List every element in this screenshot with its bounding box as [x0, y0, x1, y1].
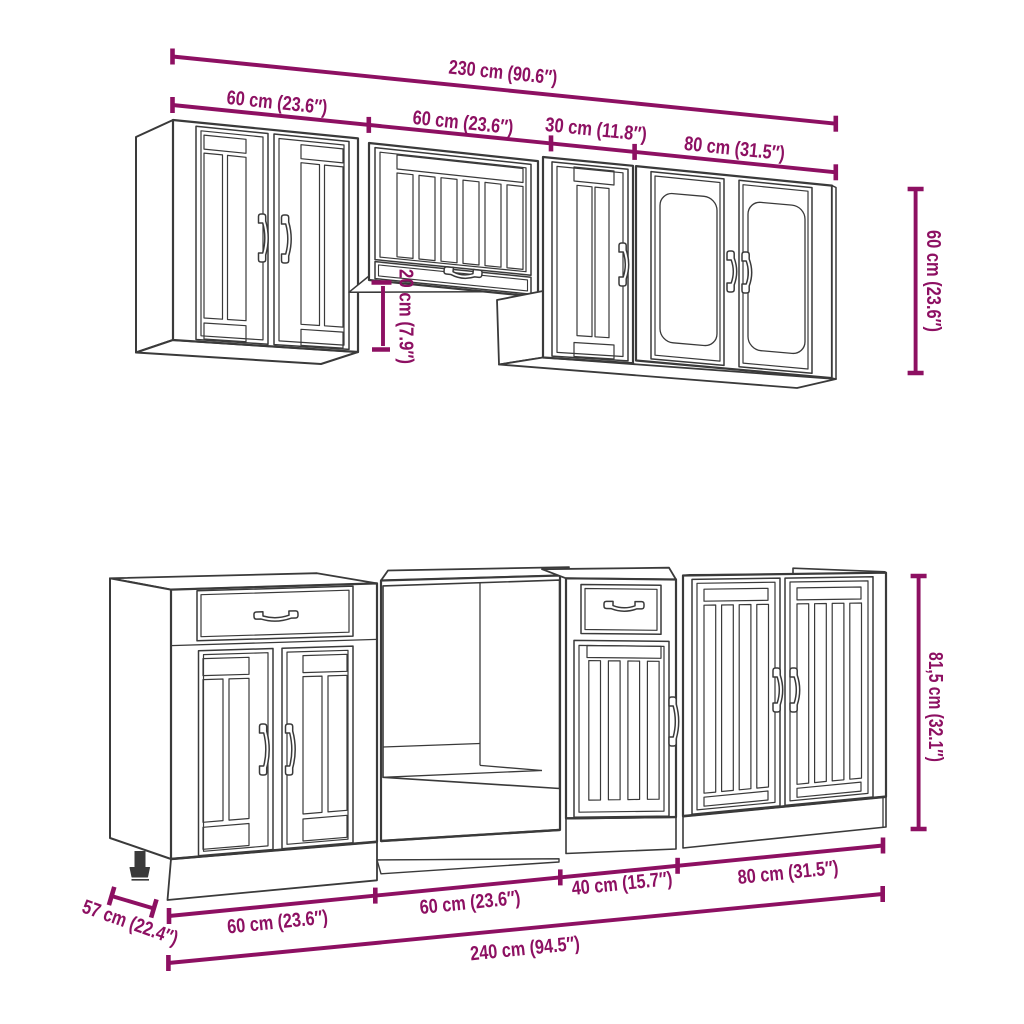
svg-text:20 cm (7.9″): 20 cm (7.9″)	[395, 269, 417, 364]
svg-text:60 cm (23.6″): 60 cm (23.6″)	[922, 230, 944, 332]
svg-text:81,5 cm (32.1″): 81,5 cm (32.1″)	[924, 652, 946, 762]
